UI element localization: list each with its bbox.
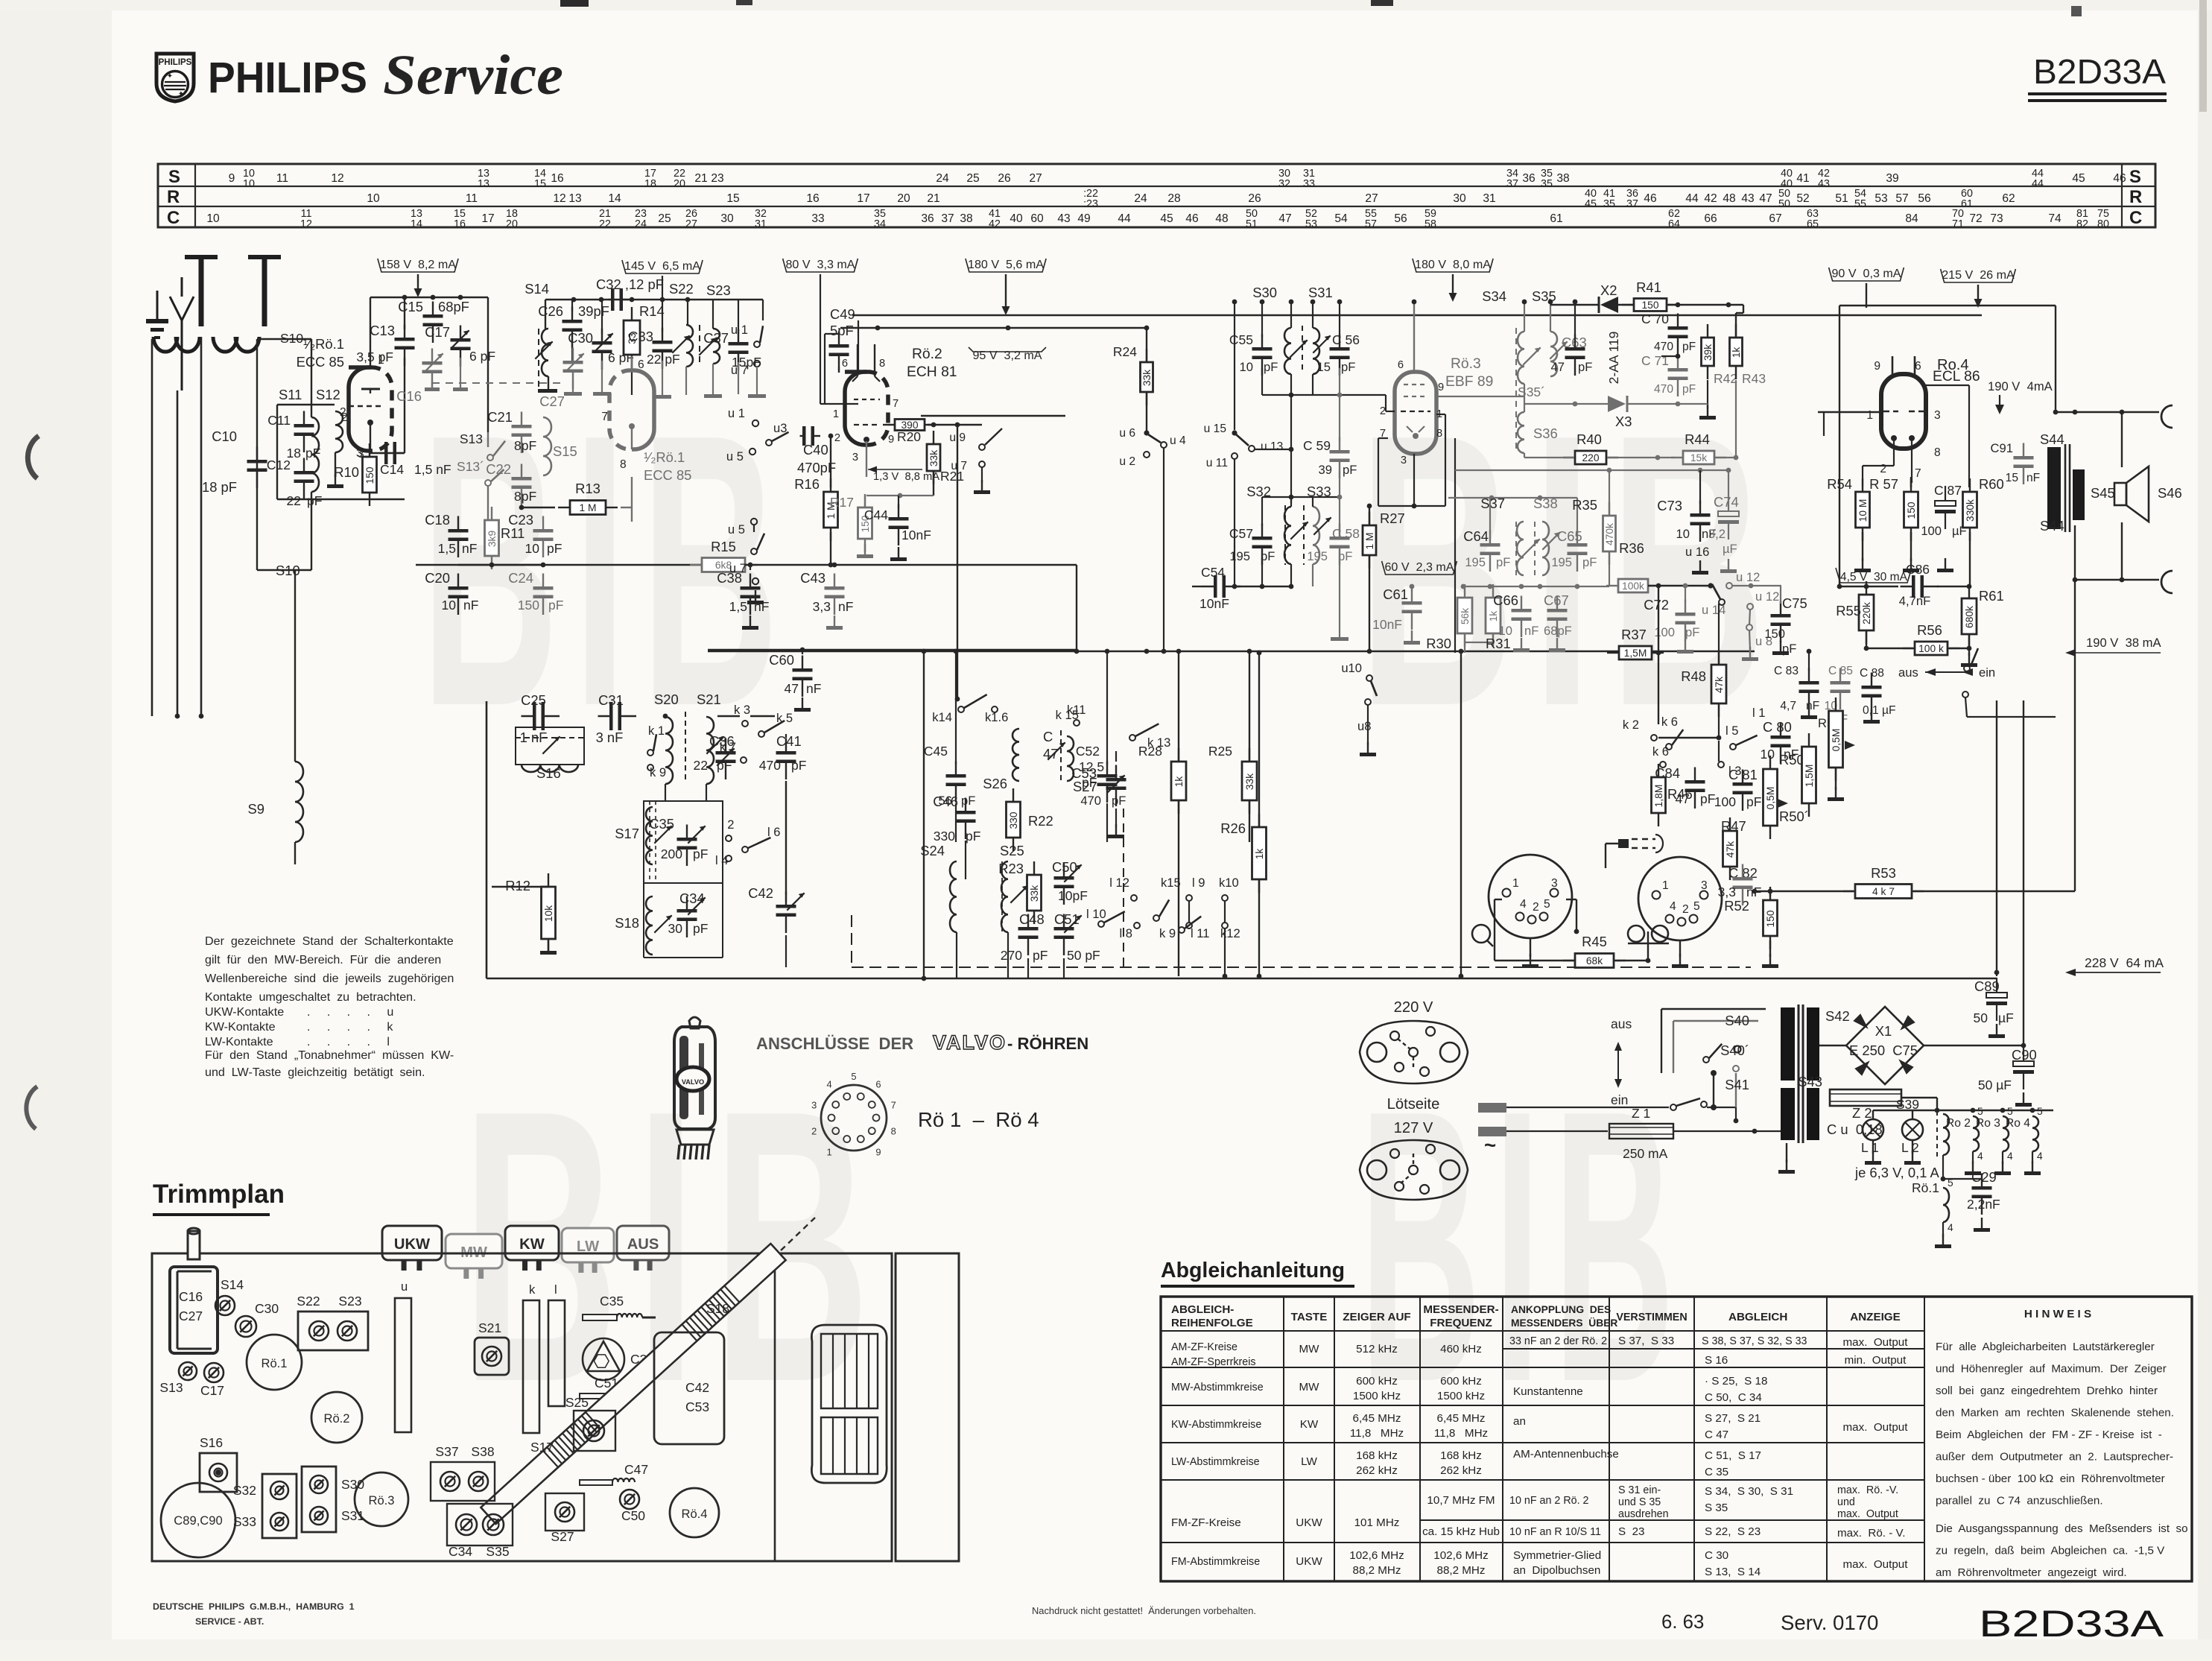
svg-text:l 11: l 11 xyxy=(1191,926,1210,940)
svg-text:44: 44 xyxy=(2032,178,2044,190)
svg-text:28: 28 xyxy=(1167,192,1180,205)
svg-text:27: 27 xyxy=(685,218,697,230)
svg-text:Trimmplan: Trimmplan xyxy=(153,1180,285,1209)
svg-text:42: 42 xyxy=(989,218,1001,230)
svg-text:220k: 220k xyxy=(1861,602,1872,624)
svg-text:S35´: S35´ xyxy=(1518,385,1545,399)
svg-text:R42: R42 xyxy=(1714,371,1737,386)
svg-text:1: 1 xyxy=(1866,409,1873,422)
svg-text:190 V 4mA: 190 V 4mA xyxy=(1988,379,2053,393)
svg-text:22: 22 xyxy=(287,493,301,508)
svg-text:1,5: 1,5 xyxy=(438,541,456,556)
svg-text:10: 10 xyxy=(243,178,255,190)
svg-text:u10: u10 xyxy=(1341,661,1362,675)
svg-text:C33: C33 xyxy=(628,329,653,344)
svg-text:74: 74 xyxy=(2048,212,2062,225)
svg-text:Rö.2: Rö.2 xyxy=(323,1411,349,1426)
svg-text:2: 2 xyxy=(834,432,840,444)
svg-text:51: 51 xyxy=(1246,218,1258,230)
svg-text:45: 45 xyxy=(1585,198,1597,210)
svg-text:l 10: l 10 xyxy=(1086,907,1106,921)
svg-text:C21: C21 xyxy=(487,409,513,425)
svg-text:215 V 26 mA: 215 V 26 mA xyxy=(1942,268,2015,282)
svg-text:33k: 33k xyxy=(928,450,939,466)
svg-text:nF: nF xyxy=(1784,747,1799,762)
svg-text:SERVICE - ABT.: SERVICE - ABT. xyxy=(195,1616,264,1627)
svg-text:6: 6 xyxy=(638,358,644,371)
svg-text:pF: pF xyxy=(548,598,563,613)
svg-text::23: :23 xyxy=(1083,198,1098,210)
svg-text:UKW: UKW xyxy=(1296,1516,1322,1529)
svg-text:S45: S45 xyxy=(2091,485,2115,501)
svg-text:FM-ZF-Kreise: FM-ZF-Kreise xyxy=(1171,1516,1241,1529)
svg-text:R61: R61 xyxy=(1979,588,2004,604)
svg-text:S11: S11 xyxy=(279,387,302,402)
svg-text:46: 46 xyxy=(1644,192,1656,205)
svg-text:an: an xyxy=(1513,1415,1526,1428)
svg-text:56k: 56k xyxy=(1460,608,1471,624)
svg-text:C18: C18 xyxy=(425,512,450,528)
svg-text:33: 33 xyxy=(811,212,824,225)
svg-text:max. Output: max. Output xyxy=(1843,1558,1909,1571)
svg-text:6: 6 xyxy=(875,1079,881,1090)
svg-text:68pF: 68pF xyxy=(1544,624,1572,638)
svg-text:1: 1 xyxy=(826,1146,831,1157)
svg-text:C24: C24 xyxy=(508,570,533,586)
svg-text:48: 48 xyxy=(1215,212,1228,225)
svg-text:C54: C54 xyxy=(1201,565,1225,580)
svg-text:. . . . u: . . . . u xyxy=(307,1005,393,1019)
svg-text:nF: nF xyxy=(806,681,821,696)
svg-text:Ro 2: Ro 2 xyxy=(1946,1117,1971,1130)
svg-text:50 µF: 50 µF xyxy=(1978,1078,2012,1092)
svg-text:18 pF: 18 pF xyxy=(202,479,237,495)
svg-text:X3: X3 xyxy=(1615,414,1632,429)
svg-text:3,3: 3,3 xyxy=(813,599,831,614)
svg-text:200: 200 xyxy=(661,847,682,861)
svg-text:C52: C52 xyxy=(1076,744,1100,759)
svg-text:R27: R27 xyxy=(1380,510,1405,526)
svg-text:195: 195 xyxy=(1229,549,1250,563)
svg-text:33k: 33k xyxy=(1141,370,1153,386)
svg-text:S42: S42 xyxy=(1825,1008,1850,1024)
svg-text:am Röhrenvoltmeter angezeigt: am Röhrenvoltmeter angezeigt wird. xyxy=(1936,1566,2127,1579)
svg-text:R35: R35 xyxy=(1572,497,1597,513)
svg-text:R: R xyxy=(167,187,180,207)
svg-text:C50: C50 xyxy=(1052,859,1077,875)
svg-text:3: 3 xyxy=(1701,879,1708,892)
svg-text:100k: 100k xyxy=(1622,580,1644,592)
svg-text:47: 47 xyxy=(1551,360,1565,374)
svg-text:UKW-Kontakte: UKW-Kontakte xyxy=(205,1005,284,1019)
svg-text:195: 195 xyxy=(1551,555,1572,569)
svg-text:12,5: 12,5 xyxy=(1079,759,1104,774)
svg-text:8: 8 xyxy=(1934,446,1941,459)
svg-text:u8: u8 xyxy=(1357,719,1371,733)
svg-text:1: 1 xyxy=(1662,879,1669,892)
svg-text:47k: 47k xyxy=(1725,841,1736,858)
svg-text:R43: R43 xyxy=(1742,371,1766,386)
svg-text:S34: S34 xyxy=(1482,288,1506,304)
svg-text:S39: S39 xyxy=(1896,1097,1919,1112)
svg-text:8pF: 8pF xyxy=(514,489,536,504)
svg-text:1: 1 xyxy=(1512,877,1519,890)
svg-text:MESSENDERS ÜBER: MESSENDERS ÜBER xyxy=(1511,1317,1617,1329)
svg-text:C 56: C 56 xyxy=(1332,332,1360,347)
svg-text:68k: 68k xyxy=(1586,955,1603,966)
svg-text:4: 4 xyxy=(2037,1151,2043,1162)
svg-text:S25: S25 xyxy=(1000,843,1024,858)
svg-text:S26: S26 xyxy=(983,776,1007,791)
svg-text:43: 43 xyxy=(1057,212,1070,225)
svg-text:37: 37 xyxy=(1506,178,1518,190)
svg-text:8: 8 xyxy=(891,1125,896,1136)
svg-text:C60: C60 xyxy=(769,652,794,668)
svg-text:150: 150 xyxy=(1764,627,1785,641)
svg-text:190 V 38 mA: 190 V 38 mA xyxy=(2086,636,2161,650)
svg-text:39k: 39k xyxy=(1702,344,1714,361)
svg-text:51: 51 xyxy=(1835,192,1848,205)
svg-text:2,2nF: 2,2nF xyxy=(1967,1197,2000,1212)
svg-text:C46: C46 xyxy=(933,794,958,809)
svg-text:82: 82 xyxy=(2076,218,2088,230)
svg-text:21: 21 xyxy=(927,192,939,205)
svg-text:180 V 5,6 mA: 180 V 5,6 mA xyxy=(968,258,1044,271)
svg-text:pF: pF xyxy=(1496,555,1510,569)
svg-text:pF: pF xyxy=(1700,791,1715,806)
svg-text:47: 47 xyxy=(1759,192,1772,205)
svg-text:21: 21 xyxy=(694,172,707,185)
svg-text:1k: 1k xyxy=(1731,347,1742,358)
svg-text:26: 26 xyxy=(998,172,1010,185)
svg-text:C53: C53 xyxy=(685,1399,709,1414)
svg-text:S22: S22 xyxy=(669,281,694,297)
svg-text:. . . . l: . . . . l xyxy=(307,1035,390,1048)
svg-text:6,45 MHz: 6,45 MHz xyxy=(1353,1412,1401,1425)
svg-text:9: 9 xyxy=(875,1146,881,1157)
svg-text:1,3 V 8,8 mA: 1,3 V 8,8 mA xyxy=(873,471,939,483)
svg-text:5pF: 5pF xyxy=(830,323,854,338)
svg-text:LW-Kontakte: LW-Kontakte xyxy=(205,1035,273,1048)
svg-text:R36: R36 xyxy=(1619,540,1644,556)
svg-text:k: k xyxy=(529,1282,536,1297)
svg-text:C12: C12 xyxy=(267,458,291,472)
svg-text:FM-Abstimmkreise: FM-Abstimmkreise xyxy=(1171,1556,1260,1568)
svg-text:¹⁄₂Rö.1: ¹⁄₂Rö.1 xyxy=(303,336,344,352)
svg-text:27: 27 xyxy=(1365,192,1378,205)
svg-text:262 kHz: 262 kHz xyxy=(1356,1464,1398,1477)
svg-text:15: 15 xyxy=(2006,472,2019,484)
svg-text:22 pF: 22 pF xyxy=(647,352,680,367)
svg-text:max. Rö. -V.: max. Rö. -V. xyxy=(1837,1484,1898,1496)
svg-text:45: 45 xyxy=(1160,212,1173,225)
svg-text:nF: nF xyxy=(462,541,477,556)
svg-text:AM-ZF-Kreise: AM-ZF-Kreise xyxy=(1171,1341,1237,1353)
svg-text:7: 7 xyxy=(893,398,899,410)
svg-text:3,5 pF: 3,5 pF xyxy=(356,349,393,364)
svg-text:33: 33 xyxy=(1303,178,1315,190)
svg-text:LW-Abstimmkreise: LW-Abstimmkreise xyxy=(1171,1456,1260,1468)
svg-text:C64: C64 xyxy=(1463,528,1489,544)
svg-text:R: R xyxy=(2129,187,2142,207)
svg-text:22: 22 xyxy=(599,218,611,230)
svg-text:C 30: C 30 xyxy=(1705,1549,1728,1562)
svg-text:· S 25, S 18: · S 25, S 18 xyxy=(1705,1375,1767,1388)
svg-text:C 87: C 87 xyxy=(1934,483,1962,498)
svg-text:150: 150 xyxy=(1641,300,1658,311)
svg-text:C50: C50 xyxy=(621,1508,645,1523)
svg-text:ECH 81: ECH 81 xyxy=(907,364,957,380)
svg-text:Kunstantenne: Kunstantenne xyxy=(1513,1385,1583,1398)
svg-text:u 12: u 12 xyxy=(1736,570,1760,584)
svg-text:R41: R41 xyxy=(1636,279,1661,295)
svg-text:38: 38 xyxy=(1556,172,1569,185)
svg-text:39: 39 xyxy=(1319,463,1332,477)
svg-text:S14: S14 xyxy=(525,281,549,297)
svg-text:2: 2 xyxy=(1880,463,1886,475)
svg-text:C11: C11 xyxy=(267,413,291,428)
svg-text:Rö.3: Rö.3 xyxy=(1451,356,1481,372)
svg-text:pF: pF xyxy=(1264,360,1278,374)
svg-text:12: 12 xyxy=(331,172,343,185)
svg-text:2: 2 xyxy=(1533,901,1539,914)
svg-text:C 47: C 47 xyxy=(1705,1429,1728,1441)
svg-text:4,5 V 30 mA: 4,5 V 30 mA xyxy=(1840,571,1908,583)
svg-text:C89,C90: C89,C90 xyxy=(174,1513,223,1528)
svg-text:168 kHz: 168 kHz xyxy=(1440,1449,1482,1462)
svg-text:S20: S20 xyxy=(654,692,679,707)
svg-text:u 7: u 7 xyxy=(731,363,748,377)
svg-text:3: 3 xyxy=(1401,455,1407,466)
svg-text:C27: C27 xyxy=(539,393,565,409)
svg-text:l 8: l 8 xyxy=(1119,926,1132,940)
svg-text:15: 15 xyxy=(726,192,740,205)
svg-text:S37: S37 xyxy=(435,1444,458,1459)
svg-text:S 13, S 14: S 13, S 14 xyxy=(1705,1566,1761,1578)
svg-text:47: 47 xyxy=(1278,212,1291,225)
svg-text:13: 13 xyxy=(568,192,581,205)
svg-text:80 V 3,3 mA: 80 V 3,3 mA xyxy=(785,258,855,271)
svg-text:S 27, S 21: S 27, S 21 xyxy=(1705,1412,1761,1425)
svg-text:6. 63: 6. 63 xyxy=(1661,1612,1704,1633)
svg-text:2: 2 xyxy=(1380,405,1386,417)
svg-text:R37: R37 xyxy=(1621,627,1647,642)
svg-text:FREQUENZ: FREQUENZ xyxy=(1430,1317,1492,1329)
svg-text:C23: C23 xyxy=(508,512,533,528)
svg-text:R45: R45 xyxy=(1582,934,1607,949)
svg-text:41: 41 xyxy=(1796,172,1809,185)
svg-text:33 nF an 2 der Rö. 2: 33 nF an 2 der Rö. 2 xyxy=(1509,1335,1607,1347)
svg-text:S38: S38 xyxy=(471,1444,494,1459)
svg-text:C51: C51 xyxy=(1054,911,1080,927)
svg-text:250 mA: 250 mA xyxy=(1623,1146,1668,1161)
svg-text:- RÖHREN: - RÖHREN xyxy=(1007,1034,1088,1053)
svg-text:k 9: k 9 xyxy=(1159,926,1176,940)
svg-text:1k: 1k xyxy=(1254,849,1265,860)
svg-text:C40: C40 xyxy=(803,442,828,458)
svg-text:100 k: 100 k xyxy=(1918,643,1944,654)
svg-text:3 nF: 3 nF xyxy=(596,730,624,745)
svg-text:27: 27 xyxy=(1029,172,1042,185)
svg-text:S17: S17 xyxy=(530,1440,554,1455)
svg-text:C35: C35 xyxy=(600,1294,624,1309)
svg-text:S43: S43 xyxy=(1798,1074,1822,1089)
svg-text:Rö.1: Rö.1 xyxy=(261,1356,287,1370)
svg-text:PHILIPS: PHILIPS xyxy=(208,54,367,102)
svg-text:B2D33A: B2D33A xyxy=(1979,1603,2164,1645)
svg-text:R25: R25 xyxy=(1208,744,1232,759)
svg-text:pF: pF xyxy=(1343,463,1357,477)
svg-text:Die Ausgangsspannung des Me: Die Ausgangsspannung des Meßsenders ist … xyxy=(1936,1522,2188,1535)
svg-text:R24: R24 xyxy=(1113,344,1137,359)
svg-text:MW-Abstimmkreise: MW-Abstimmkreise xyxy=(1171,1382,1264,1393)
svg-text:15: 15 xyxy=(534,178,546,190)
svg-text:10: 10 xyxy=(1240,360,1253,374)
svg-text:C91: C91 xyxy=(1991,441,2013,455)
svg-text:S10: S10 xyxy=(280,331,303,346)
svg-text:C 81: C 81 xyxy=(1728,767,1758,782)
svg-text:C74: C74 xyxy=(1714,494,1739,510)
svg-text:56: 56 xyxy=(1918,192,1930,205)
svg-text:5: 5 xyxy=(2007,1106,2013,1117)
svg-text:ein: ein xyxy=(1611,1092,1628,1107)
svg-text:pF: pF xyxy=(1112,794,1126,808)
svg-text:43: 43 xyxy=(1741,192,1754,205)
svg-text:95 V 3,2 mA: 95 V 3,2 mA xyxy=(972,349,1042,362)
svg-text:ANZEIGE: ANZEIGE xyxy=(1850,1311,1901,1323)
svg-text:C66: C66 xyxy=(1493,592,1518,608)
svg-text:10k: 10k xyxy=(543,905,554,922)
svg-text:8: 8 xyxy=(1436,428,1442,440)
svg-text:nF: nF xyxy=(1746,885,1761,899)
svg-text:460 kHz: 460 kHz xyxy=(1440,1343,1482,1355)
svg-text:AM-ZF-Sperrkreis: AM-ZF-Sperrkreis xyxy=(1171,1356,1256,1368)
svg-text:C49: C49 xyxy=(830,306,855,322)
svg-text:C26: C26 xyxy=(538,303,563,319)
svg-text:R10: R10 xyxy=(334,464,359,480)
svg-text:600 kHz: 600 kHz xyxy=(1356,1375,1398,1388)
svg-text:84: 84 xyxy=(1905,212,1918,225)
svg-text:4: 4 xyxy=(2007,1151,2013,1162)
svg-text:S13: S13 xyxy=(159,1380,183,1395)
svg-text:ECC 85: ECC 85 xyxy=(297,354,344,370)
svg-text:zu regeln, daß beim Abglei: zu regeln, daß beim Abgleichen ca. -1,5 … xyxy=(1936,1545,2165,1557)
svg-text:5: 5 xyxy=(1693,900,1700,913)
svg-text:1500 kHz: 1500 kHz xyxy=(1353,1390,1401,1402)
svg-text:35: 35 xyxy=(1603,198,1615,210)
svg-text:11,8 MHz: 11,8 MHz xyxy=(1434,1427,1488,1440)
svg-text:47: 47 xyxy=(785,681,799,696)
svg-text:0,5M: 0,5M xyxy=(1765,787,1776,810)
svg-text:15k: 15k xyxy=(1690,452,1707,464)
svg-text:0,1 µF: 0,1 µF xyxy=(1863,704,1896,717)
svg-text:330k: 330k xyxy=(1965,499,1976,522)
svg-text:90 V 0,3 mA: 90 V 0,3 mA xyxy=(1831,267,1901,280)
svg-text:S17: S17 xyxy=(615,826,639,841)
svg-text:30: 30 xyxy=(668,921,683,936)
svg-text:20: 20 xyxy=(897,192,910,205)
svg-text:10: 10 xyxy=(1761,747,1775,762)
svg-text:pF: pF xyxy=(1682,383,1696,396)
svg-text:S16: S16 xyxy=(536,765,561,781)
svg-text:10 nF an 2 Rö. 2: 10 nF an 2 Rö. 2 xyxy=(1509,1495,1589,1507)
svg-text:102,6 MHz: 102,6 MHz xyxy=(1433,1549,1488,1562)
svg-text:S25: S25 xyxy=(565,1395,589,1410)
svg-text:C37: C37 xyxy=(703,330,729,346)
svg-text:MW: MW xyxy=(1299,1381,1320,1393)
svg-text:S40´: S40´ xyxy=(1720,1043,1749,1058)
svg-text:S12: S12 xyxy=(316,387,340,402)
svg-text:S: S xyxy=(168,167,180,187)
svg-text:C41: C41 xyxy=(776,733,802,749)
svg-text:C34: C34 xyxy=(449,1544,472,1559)
svg-text:10nF: 10nF xyxy=(1200,596,1229,611)
svg-text:1 M: 1 M xyxy=(580,502,597,513)
svg-text:C75: C75 xyxy=(1782,595,1807,611)
svg-text:1,5: 1,5 xyxy=(729,599,747,614)
svg-text:33k: 33k xyxy=(1244,773,1255,790)
svg-text:55: 55 xyxy=(1854,198,1866,210)
svg-text:C: C xyxy=(2129,208,2142,228)
svg-text:64: 64 xyxy=(1668,218,1680,230)
svg-text:9: 9 xyxy=(1874,360,1880,373)
svg-text:C86: C86 xyxy=(1906,562,1930,577)
svg-text:10nF: 10nF xyxy=(1372,617,1402,632)
svg-text:C16: C16 xyxy=(396,388,422,404)
svg-text:X1: X1 xyxy=(1875,1023,1892,1039)
svg-text:4: 4 xyxy=(1948,1222,1953,1233)
svg-text:C30: C30 xyxy=(568,330,593,346)
svg-text:ABGLEICH: ABGLEICH xyxy=(1728,1311,1787,1323)
svg-text:9: 9 xyxy=(888,434,894,446)
svg-text:Rö.1: Rö.1 xyxy=(1912,1180,1939,1195)
svg-text:B2D33A: B2D33A xyxy=(2033,52,2166,91)
svg-text:ca. 15 kHz Hub: ca. 15 kHz Hub xyxy=(1422,1525,1500,1538)
svg-text:S16: S16 xyxy=(200,1435,223,1450)
svg-text:C 59: C 59 xyxy=(1303,438,1331,453)
svg-text:C90: C90 xyxy=(2012,1047,2037,1063)
svg-text:S30: S30 xyxy=(1252,285,1277,300)
svg-text:101 MHz: 101 MHz xyxy=(1354,1516,1400,1529)
svg-text:50: 50 xyxy=(1974,1010,1988,1025)
svg-text:u 16: u 16 xyxy=(1685,545,1709,559)
svg-text:46: 46 xyxy=(1185,212,1198,225)
svg-text:L 1: L 1 xyxy=(1861,1140,1879,1155)
svg-text:24: 24 xyxy=(936,172,949,185)
svg-text:10nF: 10nF xyxy=(901,528,931,542)
svg-text:3: 3 xyxy=(811,1100,817,1111)
svg-text:u 5: u 5 xyxy=(726,449,744,464)
svg-text:9: 9 xyxy=(229,172,235,185)
svg-text:außer dem Outputmeter an 2: außer dem Outputmeter an 2. Lautsprecher… xyxy=(1936,1451,2173,1464)
svg-text:32: 32 xyxy=(1278,178,1290,190)
svg-text:4,7: 4,7 xyxy=(1780,700,1796,712)
svg-text:ein: ein xyxy=(1979,665,1995,680)
svg-text:68pF: 68pF xyxy=(438,299,469,314)
svg-text:36: 36 xyxy=(921,212,934,225)
svg-text:pF: pF xyxy=(961,794,975,808)
svg-text:k 13: k 13 xyxy=(1147,735,1170,750)
svg-text:Abgleichanleitung: Abgleichanleitung xyxy=(1161,1259,1345,1282)
svg-text:C65: C65 xyxy=(1557,528,1582,544)
svg-text:R55: R55 xyxy=(1836,603,1861,618)
svg-text:195: 195 xyxy=(1307,549,1328,563)
svg-text:9: 9 xyxy=(1438,382,1444,393)
svg-text:100: 100 xyxy=(1921,524,1942,538)
svg-text:C17: C17 xyxy=(425,324,450,340)
svg-text:R44: R44 xyxy=(1685,431,1710,447)
svg-text:45: 45 xyxy=(2072,172,2085,185)
